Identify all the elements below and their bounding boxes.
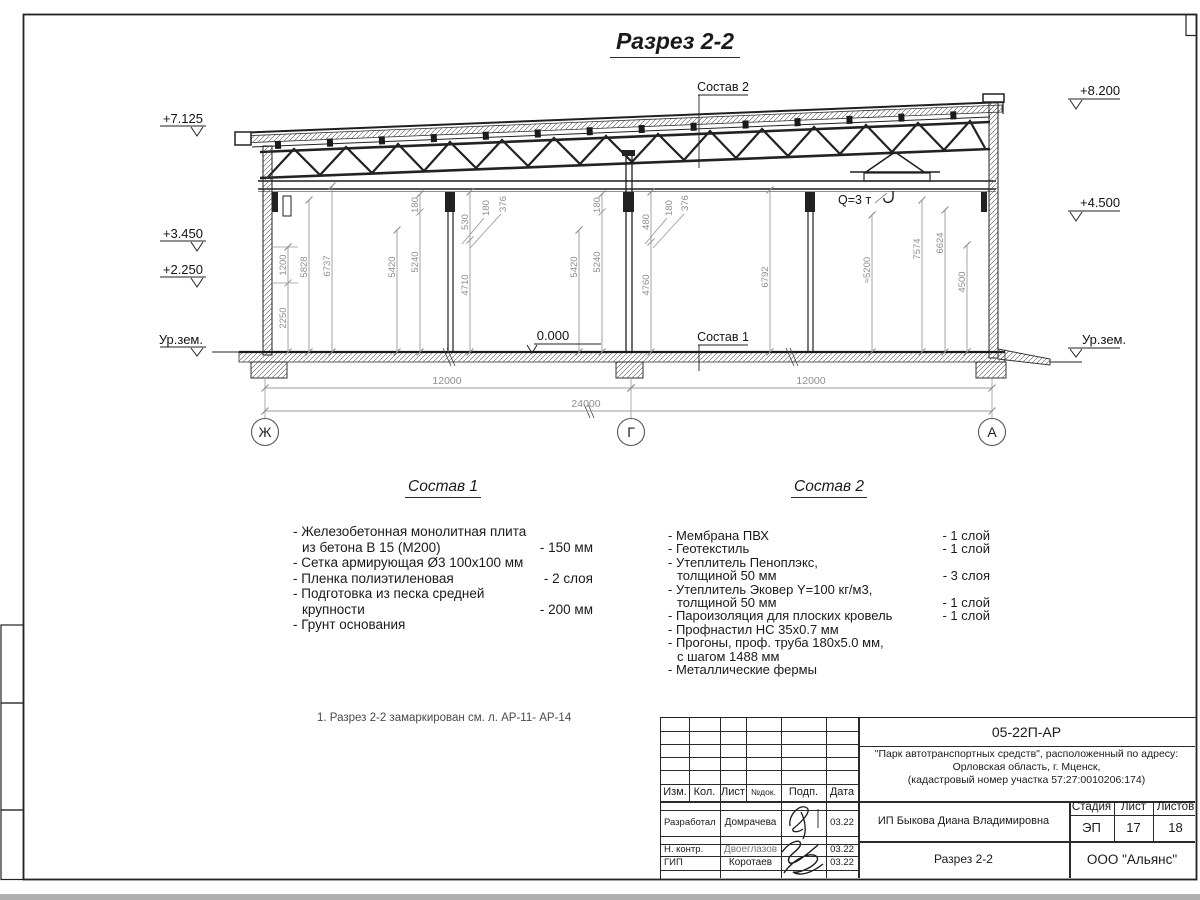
column-intermediate	[448, 192, 813, 352]
tb-date: 03.22	[826, 810, 858, 836]
dim-label: 6737	[322, 255, 333, 276]
list-item: - Пленка полиэтиленовая- 2 слоя	[293, 571, 593, 587]
tb-stage-value: ЭП	[1069, 815, 1114, 841]
dim-label: 5420	[387, 256, 398, 277]
parapet-cap	[983, 94, 1004, 102]
tb-name: Домрачева	[720, 810, 781, 836]
sostav1-block: Состав 1 - Железобетонная монолитная пли…	[293, 478, 593, 633]
tb-col-podp: Подп.	[781, 784, 826, 801]
dim-label: 5240	[592, 251, 603, 272]
sostav2-title: Состав 2	[668, 478, 990, 498]
crane-capacity-label: Q=3 т	[838, 193, 871, 207]
tb-col-list: Лист	[720, 784, 746, 801]
tb-doc-title: Разрез 2-2	[858, 841, 1069, 878]
tb-col-data: Дата	[826, 784, 858, 801]
list-item: - Прогоны, проф. труба 180х5.0 мм,	[668, 636, 990, 649]
hook	[884, 191, 893, 202]
floor	[212, 348, 1082, 418]
list-item: - Металлические фермы	[668, 663, 990, 676]
page-title: Разрез 2-2	[560, 28, 790, 58]
dim-label: ≈5200	[862, 257, 873, 283]
tb-role: Разработал	[664, 810, 720, 836]
eave-cap	[235, 132, 251, 145]
tb-doc-code: 05-22П-АР	[858, 718, 1195, 746]
tb-name: Коротаев	[720, 856, 781, 870]
dim-label: 5420	[569, 256, 580, 277]
dim-label: 4710	[460, 274, 471, 295]
dim-label: 1200	[278, 254, 289, 275]
dim-label: 4500	[957, 271, 968, 292]
zero-elevation-label: 0.000	[537, 328, 570, 343]
dim-label: 6624	[935, 232, 946, 253]
roof	[235, 94, 1004, 147]
dim-label: 180	[481, 200, 492, 216]
axis-bubbles: Ж Г А	[252, 419, 1006, 446]
margin-box	[1, 810, 24, 880]
dim-label: 180	[592, 197, 603, 213]
column-axis-g	[626, 154, 632, 352]
list-item: - Мембрана ПВХ- 1 слой	[668, 529, 990, 542]
tb-client: ИП Быкова Диана Владимировна	[858, 801, 1069, 841]
dim-label: 12000	[432, 375, 461, 387]
walls-columns	[263, 102, 998, 358]
tb-date: 03.22	[826, 844, 858, 856]
tb-col-ndok: №док.	[746, 784, 781, 801]
dim-labels-vertical: 1200 2250 5828 6737 5420 180 5240 530 47…	[278, 195, 968, 329]
tb-date: 03.22	[826, 856, 858, 870]
dim-label: 4760	[641, 274, 652, 295]
dim-label: 180	[410, 197, 421, 213]
dim-label: 180	[664, 200, 675, 216]
list-item: - Пароизоляция для плоских кровель- 1 сл…	[668, 609, 990, 622]
tb-project-line: "Парк автотранспортных средств", располо…	[858, 748, 1195, 760]
sostav1-title: Состав 1	[293, 478, 593, 498]
tb-role: ГИП	[664, 856, 720, 870]
dim-label: 376	[498, 196, 509, 212]
list-item: толщиной 50 мм- 1 слой	[668, 596, 990, 609]
axis-label: Ж	[259, 424, 272, 440]
tb-name: Двоеглазов	[720, 844, 781, 856]
dim-label: 5240	[410, 251, 421, 272]
tb-sheets-total: 18	[1153, 815, 1198, 841]
elevation-label: +2.250	[163, 262, 203, 277]
tb-role: Н. контр.	[664, 844, 720, 856]
footing	[616, 362, 643, 378]
tb-stage-header: Стадия	[1069, 801, 1114, 815]
list-item: толщиной 50 мм- 3 слоя	[668, 569, 990, 582]
list-item: - Железобетонная монолитная плита	[293, 524, 593, 540]
list-item: из бетона В 15 (М200)- 150 мм	[293, 540, 593, 556]
scan-edge	[0, 894, 1200, 900]
list-item: - Сетка армирующая Ø3 100х100 мм	[293, 555, 593, 571]
list-item: крупности- 200 мм	[293, 602, 593, 618]
list-item: - Утеплитель Пеноплэкс,	[668, 556, 990, 569]
list-item: - Утеплитель Эковер Y=100 кг/м3,	[668, 583, 990, 596]
dim-lines-horizontal	[265, 378, 992, 419]
sostav2-ref-label: Состав 2	[697, 80, 749, 94]
elevation-label: +8.200	[1080, 83, 1120, 98]
tb-sheets-header: Листов	[1153, 801, 1198, 815]
truss	[260, 121, 990, 178]
sheet-note: 1. Разрез 2-2 замаркирован см. л. АР-11-…	[317, 712, 571, 724]
tb-col-izm: Изм.	[661, 784, 689, 801]
dim-label: 6792	[760, 266, 771, 287]
elevation-label: +3.450	[163, 226, 203, 241]
elevation-label: Ур.зем.	[159, 332, 203, 347]
dim-label: 7574	[912, 238, 923, 259]
footing	[976, 362, 1006, 378]
list-item: - Грунт основания	[293, 617, 593, 633]
axis-label: А	[987, 424, 997, 440]
elevation-label: Ур.зем.	[1082, 332, 1126, 347]
drawing-sheet: { "sheet": { "title": "Разрез 2-2", "not…	[0, 0, 1200, 900]
title-block: Изм. Кол. Лист №док. Подп. Дата Разработ…	[660, 717, 1197, 880]
tb-sheet-header: Лист	[1114, 801, 1153, 815]
elevation-label: +7.125	[163, 111, 203, 126]
margin-box	[1, 703, 24, 810]
corner-box	[1186, 15, 1197, 36]
tb-project-line: (кадастровый номер участка 57:27:0010206…	[858, 774, 1195, 786]
elevation-label: +4.500	[1080, 195, 1120, 210]
footing	[251, 362, 287, 378]
tb-col-kol: Кол.	[689, 784, 720, 801]
sostav1-ref-label: Состав 1	[697, 330, 749, 344]
list-item: с шагом 1488 мм	[668, 650, 990, 663]
dim-label: 480	[641, 214, 652, 230]
dim-label: 2250	[278, 307, 289, 328]
dim-label: 530	[460, 214, 471, 230]
wall-right	[989, 102, 998, 358]
sostav2-block: Состав 2 - Мембрана ПВХ- 1 слой - Геотек…	[668, 478, 990, 676]
list-item: - Подготовка из песка средней	[293, 586, 593, 602]
dim-label: 24000	[571, 398, 600, 410]
list-item: - Геотекстиль- 1 слой	[668, 542, 990, 555]
tb-organization: ООО "Альянс"	[1069, 841, 1195, 878]
wall-left	[263, 146, 272, 355]
dim-label: 12000	[796, 375, 825, 387]
margin-box	[1, 625, 24, 703]
dim-label: 5828	[299, 256, 310, 277]
tb-sheet-number: 17	[1114, 815, 1153, 841]
runway-beam	[258, 181, 996, 192]
axis-label: Г	[627, 424, 635, 440]
purlins	[275, 114, 985, 145]
tb-project-line: Орловская область, г. Мценск,	[858, 761, 1195, 773]
list-item: - Профнастил НС 35х0.7 мм	[668, 623, 990, 636]
dim-label: 376	[680, 195, 691, 211]
